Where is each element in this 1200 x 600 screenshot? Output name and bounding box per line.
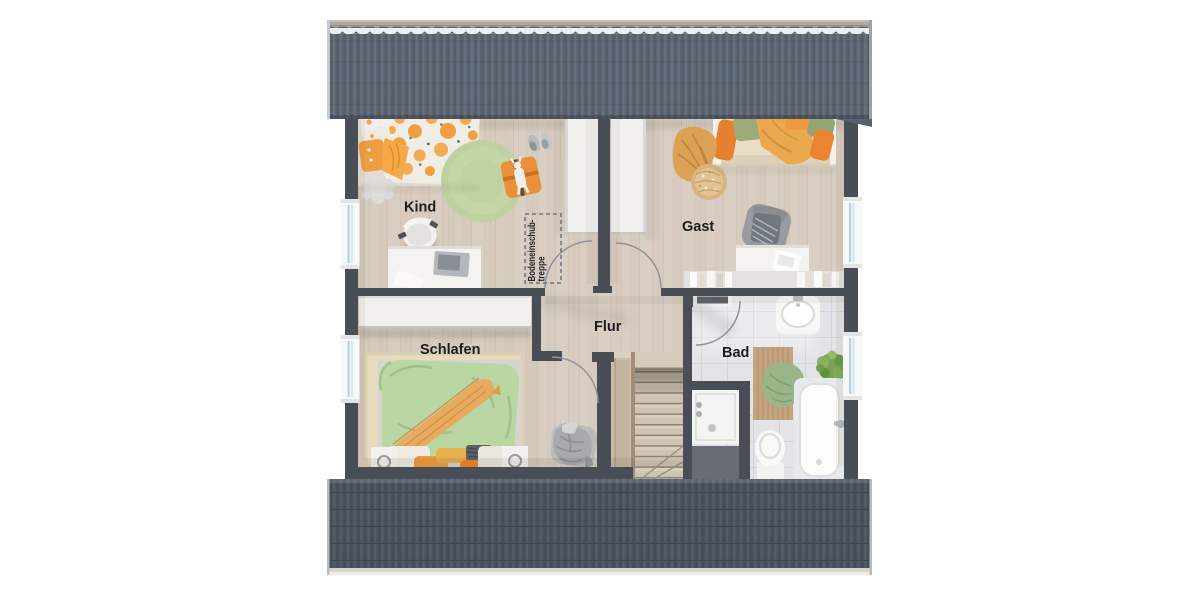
svg-text:Gast: Gast — [682, 219, 714, 235]
svg-text:Flur: Flur — [594, 319, 622, 335]
svg-text:treppe: treppe — [537, 256, 548, 281]
svg-text:Bad: Bad — [722, 345, 749, 361]
svg-text:Schlafen: Schlafen — [420, 342, 480, 358]
svg-text:Kind: Kind — [404, 200, 436, 216]
